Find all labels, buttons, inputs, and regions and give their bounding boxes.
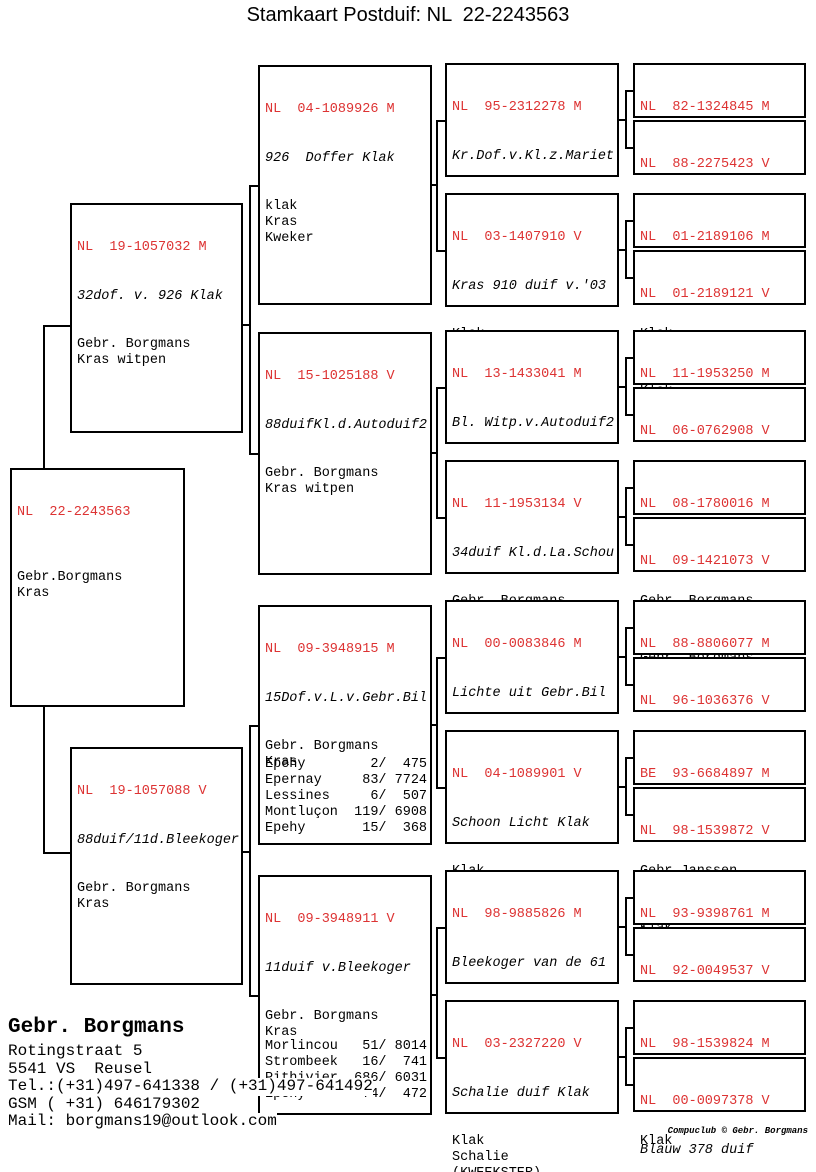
ring-number: NL 88-8806077 M <box>640 637 799 653</box>
ring-number: NL 88-2275423 V <box>640 157 799 173</box>
pigeon-name: Schoon Licht Klak <box>452 816 612 832</box>
pedigree-box-ggp4: NL 11-1953134 V 34duif Kl.d.La.Schou Geb… <box>445 460 619 574</box>
pedigree-connector-line <box>242 324 250 326</box>
race-results: Epehy 2/ 475Epernay 83/ 7724Lessines 6/ … <box>265 757 425 837</box>
text-line: Schalie <box>452 1150 612 1166</box>
pedigree-box-g15: NL 98-1539824 M Kras 824 '98 10 pr. Klak <box>633 1000 806 1055</box>
info-lines: Gebr.BorgmansKras <box>17 554 178 602</box>
info-lines: Gebr. BorgmansKras <box>77 881 236 913</box>
ring-number: NL 01-2189121 V <box>640 287 799 303</box>
text-line: Epehy 2/ 475 <box>265 757 425 773</box>
pedigree-box-g3: NL 01-2189106 M Blauwe 106 in'01 9pr Kla… <box>633 193 806 248</box>
text-line: Kras <box>77 897 236 913</box>
pigeon-name: Schalie duif Klak <box>452 1086 612 1102</box>
text-line: Klak <box>452 1134 612 1150</box>
ring-number: NL 82-1324845 M <box>640 100 799 116</box>
pedigree-connector-line <box>43 852 71 854</box>
pigeon-name: 34duif Kl.d.La.Schou <box>452 546 612 562</box>
owner-info: Gebr. Borgmans Rotingstraat 5 5541 VS Re… <box>8 1016 373 1131</box>
pigeon-name: Lichte uit Gebr.Bil <box>452 686 612 702</box>
text-line: klak <box>265 199 425 215</box>
pedigree-box-g6: NL 06-0762908 V Autoduif2NAT.Orleans Geb… <box>633 387 806 442</box>
ring-number: NL 01-2189106 M <box>640 230 799 246</box>
pedigree-box-g12: NL 98-1539872 V Blauw duif v.d. 613 Klak <box>633 787 806 842</box>
text-line: Epernay 83/ 7724 <box>265 773 425 789</box>
text-line: Gebr. Borgmans <box>77 881 236 897</box>
pedigree-box-gp1: NL 04-1089926 M 926 Doffer Klak klakKras… <box>258 65 432 305</box>
ring-number: NL 95-2312278 M <box>452 100 612 116</box>
pedigree-box-ggp7: NL 98-9885826 M Bleekoger van de 61 1epr… <box>445 870 619 984</box>
pedigree-connector-line <box>242 851 250 853</box>
ring-number: NL 04-1089901 V <box>452 767 612 783</box>
ring-number: NL 92-0049537 V <box>640 964 799 980</box>
ring-number: NL 11-1953250 M <box>640 367 799 383</box>
ring-number: NL 22-2243563 <box>17 505 178 521</box>
pedigree-connector-line <box>249 185 251 455</box>
pigeon-name: Kr.Dof.v.Kl.z.Mariet <box>452 149 612 165</box>
text-line: Lessines 6/ 507 <box>265 789 425 805</box>
text-line: Gebr. Borgmans <box>265 466 425 482</box>
owner-street: Rotingstraat 5 <box>8 1043 142 1061</box>
pedigree-connector-line <box>43 325 71 327</box>
ring-number: NL 04-1089926 M <box>265 102 425 118</box>
ring-number: NL 09-1421073 V <box>640 554 799 570</box>
ring-number: NL 09-3948915 M <box>265 642 425 658</box>
owner-email: Mail: borgmans19@outlook.com <box>8 1113 277 1131</box>
pedigree-box-gp2: NL 15-1025188 V 88duifKl.d.Autoduif2 Geb… <box>258 332 432 575</box>
ring-number: NL 19-1057032 M <box>77 240 236 256</box>
pedigree-connector-line <box>436 120 438 252</box>
pedigree-connector-line <box>618 386 626 388</box>
ring-number: NL 00-0083846 M <box>452 637 612 653</box>
ring-number: NL 98-9885826 M <box>452 907 612 923</box>
ring-number: NL 11-1953134 V <box>452 497 612 513</box>
pedigree-box-ggp5: NL 00-0083846 M Lichte uit Gebr.Bil Gebr… <box>445 600 619 714</box>
pedigree-box-ggp6: NL 04-1089901 V Schoon Licht Klak KlakKr… <box>445 730 619 844</box>
pedigree-connector-line <box>618 516 626 518</box>
info-lines: klakKrasKweker <box>265 199 425 247</box>
pedigree-box-g13: NL 93-9398761 M 61 Doffer uit Beer Gebr.… <box>633 870 806 925</box>
pedigree-connector-line <box>618 786 626 788</box>
ring-number: NL 00-0097378 V <box>640 1094 799 1110</box>
pedigree-box-g2: NL 88-2275423 V Bl 23 duif '89 14 pr Kla… <box>633 120 806 175</box>
ring-number: NL 96-1036376 V <box>640 694 799 710</box>
owner-city: 5541 VS Reusel <box>8 1061 152 1079</box>
ring-number: NL 03-2327220 V <box>452 1037 612 1053</box>
pigeon-name: Blauw 378 duif <box>640 1143 799 1159</box>
pedigree-box-gp3: NL 09-3948915 M 15Dof.v.L.v.Gebr.Bil Geb… <box>258 605 432 845</box>
pedigree-box-ggp8: NL 03-2327220 V Schalie duif Klak KlakSc… <box>445 1000 619 1114</box>
ring-number: NL 03-1407910 V <box>452 230 612 246</box>
pedigree-connector-line <box>618 1056 626 1058</box>
pigeon-name: 88duifKl.d.Autoduif2 <box>265 418 425 434</box>
ring-number: NL 13-1433041 M <box>452 367 612 383</box>
page-title: Stamkaart Postduif: NL 22-2243563 <box>0 4 816 27</box>
ring-number: NL 98-1539824 M <box>640 1037 799 1053</box>
text-line: Kweker <box>265 231 425 247</box>
text-line: Kras witpen <box>265 482 425 498</box>
owner-telephone: Tel.:(+31)497-641338 / (+31)497-641492 <box>8 1078 373 1096</box>
pigeon-name: 88duif/11d.Bleekoger <box>77 833 236 849</box>
text-line: (KWEEKSTER) <box>452 1166 612 1172</box>
pedigree-connector-line <box>618 926 626 928</box>
pedigree-box-g9: NL 88-8806077 M Gebroken Bil Gebr. Borgm… <box>633 600 806 655</box>
pedigree-box-g4: NL 01-2189121 V Kras 121duif '01 9pr Kla… <box>633 250 806 305</box>
pedigree-connector-line <box>618 249 626 251</box>
ring-number: NL 93-9398761 M <box>640 907 799 923</box>
pedigree-box-g10: NL 96-1036376 V Licht uit 613 Klak Klak <box>633 657 806 712</box>
pedigree-box-g11: BE 93-6684897 M 897 Doffer Janssen Gebr.… <box>633 730 806 785</box>
pedigree-connector-line <box>618 119 626 121</box>
ring-number: NL 08-1780016 M <box>640 497 799 513</box>
pigeon-name: Bl. Witp.v.Autoduif2 <box>452 416 612 432</box>
pedigree-box-sire: NL 19-1057032 M 32dof. v. 926 Klak Gebr.… <box>70 203 243 433</box>
pedigree-box-g7: NL 08-1780016 M 16Dof.v.LateSchouwma Geb… <box>633 460 806 515</box>
pedigree-box-g8: NL 09-1421073 V 73duif v.Sch.D.v.25 Gebr… <box>633 517 806 572</box>
text-line <box>17 554 178 570</box>
pedigree-box-dam: NL 19-1057088 V 88duif/11d.Bleekoger Geb… <box>70 747 243 985</box>
text-line: Gebr. Borgmans <box>77 337 236 353</box>
text-line: Gebr. Borgmans <box>265 739 425 755</box>
text-line: Kras <box>17 586 178 602</box>
pedigree-connector-line <box>436 657 438 789</box>
pedigree-box-g5: NL 11-1953250 M Bl.50dof.v. Li.v.613 Geb… <box>633 330 806 385</box>
ring-number: NL 15-1025188 V <box>265 369 425 385</box>
compuclub-credit: Compuclub © Gebr. Borgmans <box>668 1126 808 1136</box>
text-line: Kras witpen <box>77 353 236 369</box>
owner-name: Gebr. Borgmans <box>8 1016 373 1039</box>
info-lines: KlakSchalie(KWEEKSTER) <box>452 1134 612 1172</box>
pedigree-connector-line <box>249 725 251 997</box>
ring-number: NL 98-1539872 V <box>640 824 799 840</box>
pedigree-box-g16: NL 00-0097378 V Blauw 378 duif Gebr. Bor… <box>633 1057 806 1112</box>
text-line: Kras <box>265 215 425 231</box>
text-line: Epehy 15/ 368 <box>265 821 425 837</box>
pedigree-box-ggp2: NL 03-1407910 V Kras 910 duif v.'03 Klak… <box>445 193 619 307</box>
pigeon-name: Kras 910 duif v.'03 <box>452 279 612 295</box>
pedigree-box-g14: NL 92-0049537 V Donk.oogje v.Late613 Geb… <box>633 927 806 982</box>
pedigree-card-page: Stamkaart Postduif: NL 22-2243563 NL 22-… <box>0 0 816 1172</box>
pedigree-box-ggp1: NL 95-2312278 M Kr.Dof.v.Kl.z.Mariet Kla… <box>445 63 619 177</box>
pedigree-connector-line <box>436 927 438 1059</box>
ring-number: NL 19-1057088 V <box>77 784 236 800</box>
text-line: Gebr.Borgmans <box>17 570 178 586</box>
pedigree-box-g1: NL 82-1324845 M Kl.ZoonMarietje Klak Kla… <box>633 63 806 118</box>
pigeon-name: Bleekoger van de 61 <box>452 956 612 972</box>
info-lines: Gebr. BorgmansKras witpen <box>265 466 425 498</box>
info-lines: Gebr. BorgmansKras witpen <box>77 337 236 369</box>
pigeon-name: 32dof. v. 926 Klak <box>77 289 236 305</box>
pigeon-name: 15Dof.v.L.v.Gebr.Bil <box>265 691 425 707</box>
owner-gsm: GSM ( +31) 646179302 <box>8 1096 200 1114</box>
text-line: Montluçon 119/ 6908 <box>265 805 425 821</box>
pigeon-name: 926 Doffer Klak <box>265 151 425 167</box>
ring-number: BE 93-6684897 M <box>640 767 799 783</box>
ring-number: NL 06-0762908 V <box>640 424 799 440</box>
ring-number: NL 09-3948911 V <box>265 912 425 928</box>
pedigree-connector-line <box>618 656 626 658</box>
pigeon-name: 11duif v.Bleekoger <box>265 961 425 977</box>
pedigree-box-subject: NL 22-2243563 Gebr.BorgmansKras <box>10 468 185 707</box>
pedigree-box-ggp3: NL 13-1433041 M Bl. Witp.v.Autoduif2 Geb… <box>445 330 619 444</box>
